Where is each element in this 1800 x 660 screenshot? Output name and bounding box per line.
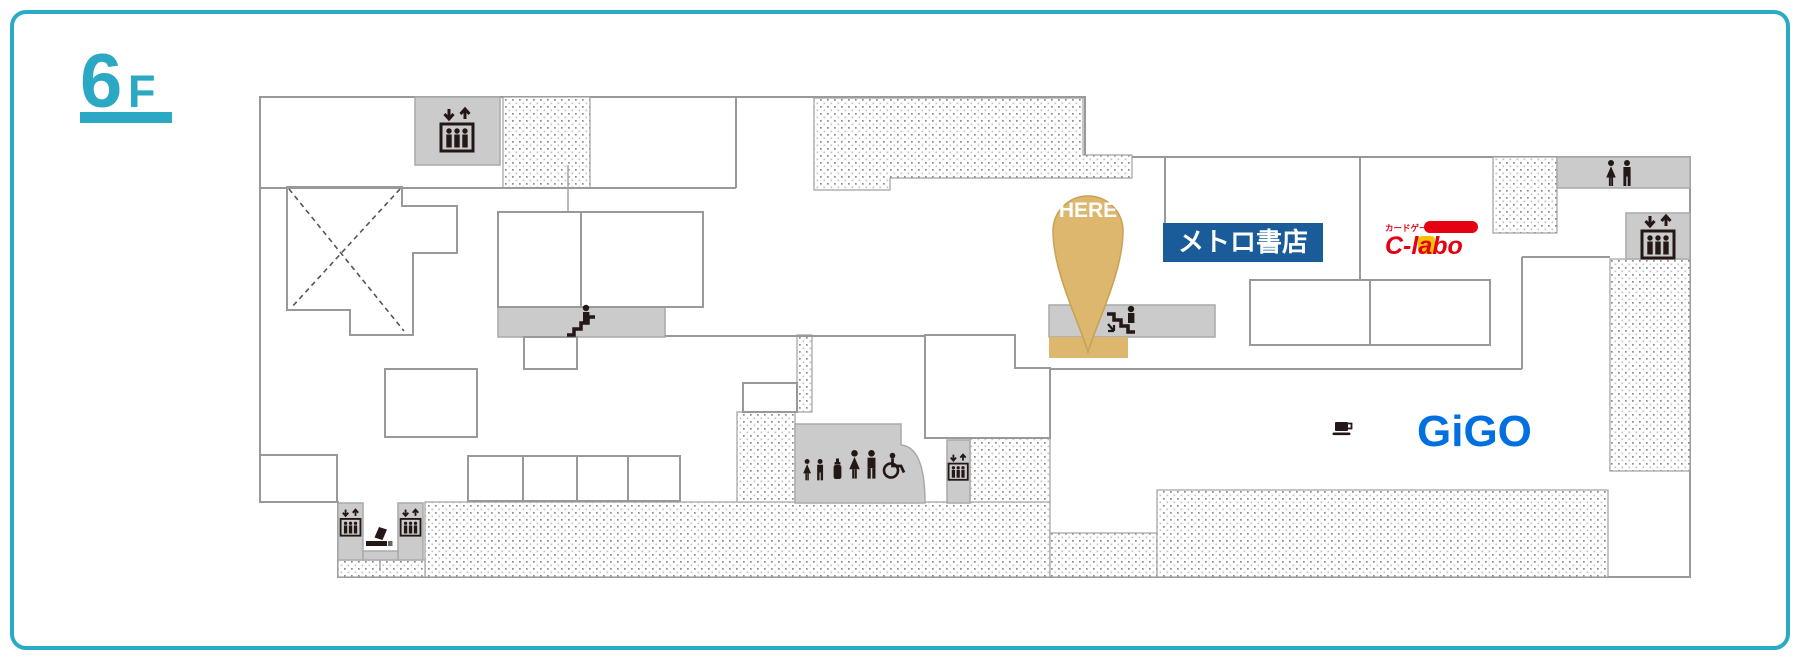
service-zone xyxy=(970,438,1050,503)
cafe-icon xyxy=(1333,422,1352,435)
service-zone xyxy=(1493,157,1557,233)
floor-number: 6 xyxy=(80,39,122,124)
floor-suffix: F xyxy=(128,66,156,117)
room xyxy=(260,455,337,502)
store-logo-metro-shoten[interactable]: メトロ書店 xyxy=(1163,223,1323,262)
building: メトロ書店 カードゲームショップ C-labo GiGO HERE xyxy=(260,97,1690,577)
service-zone xyxy=(737,412,795,503)
service-zone xyxy=(797,335,812,412)
room xyxy=(498,212,703,307)
floor-map-page: 6 F xyxy=(0,0,1800,660)
metro-logo-text: メトロ書店 xyxy=(1178,227,1308,257)
service-zone xyxy=(1050,533,1157,577)
c-labo-logo-text: C-labo xyxy=(1385,232,1463,260)
floor-label-underline xyxy=(80,112,172,123)
smoking-area-base xyxy=(363,551,398,560)
room xyxy=(468,456,680,501)
floor-map: 6 F xyxy=(0,0,1800,660)
service-zone xyxy=(425,502,1050,577)
gigo-logo-text: GiGO xyxy=(1417,407,1532,456)
here-pin-label: HERE xyxy=(1059,199,1117,222)
room xyxy=(524,337,577,369)
store-logo-gigo[interactable]: GiGO xyxy=(1417,407,1532,456)
service-zone xyxy=(503,97,590,188)
service-zone xyxy=(1610,259,1690,471)
room xyxy=(743,383,797,412)
room xyxy=(385,369,477,437)
service-zone xyxy=(1157,490,1608,577)
service-zone xyxy=(338,560,425,577)
